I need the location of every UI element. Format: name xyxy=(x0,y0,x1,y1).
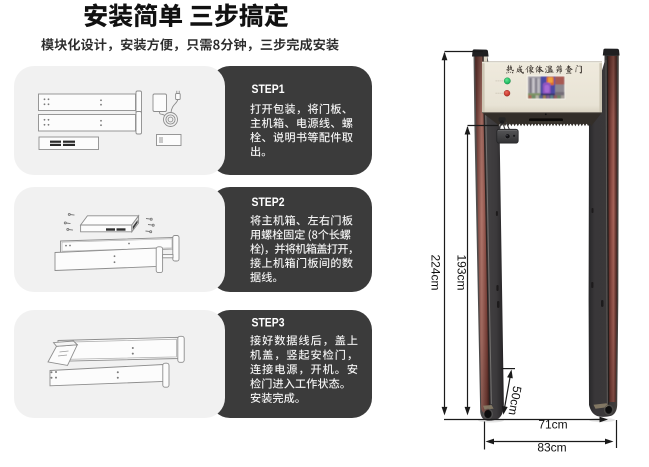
svg-text:STEP1: STEP1 xyxy=(252,84,286,96)
svg-text:224cm: 224cm xyxy=(429,254,443,290)
svg-text:193cm: 193cm xyxy=(455,254,469,290)
svg-text:71cm: 71cm xyxy=(538,417,567,431)
svg-text:STEP3: STEP3 xyxy=(252,318,285,330)
svg-text:83cm: 83cm xyxy=(537,441,566,455)
svg-text:STEP2: STEP2 xyxy=(252,197,285,209)
